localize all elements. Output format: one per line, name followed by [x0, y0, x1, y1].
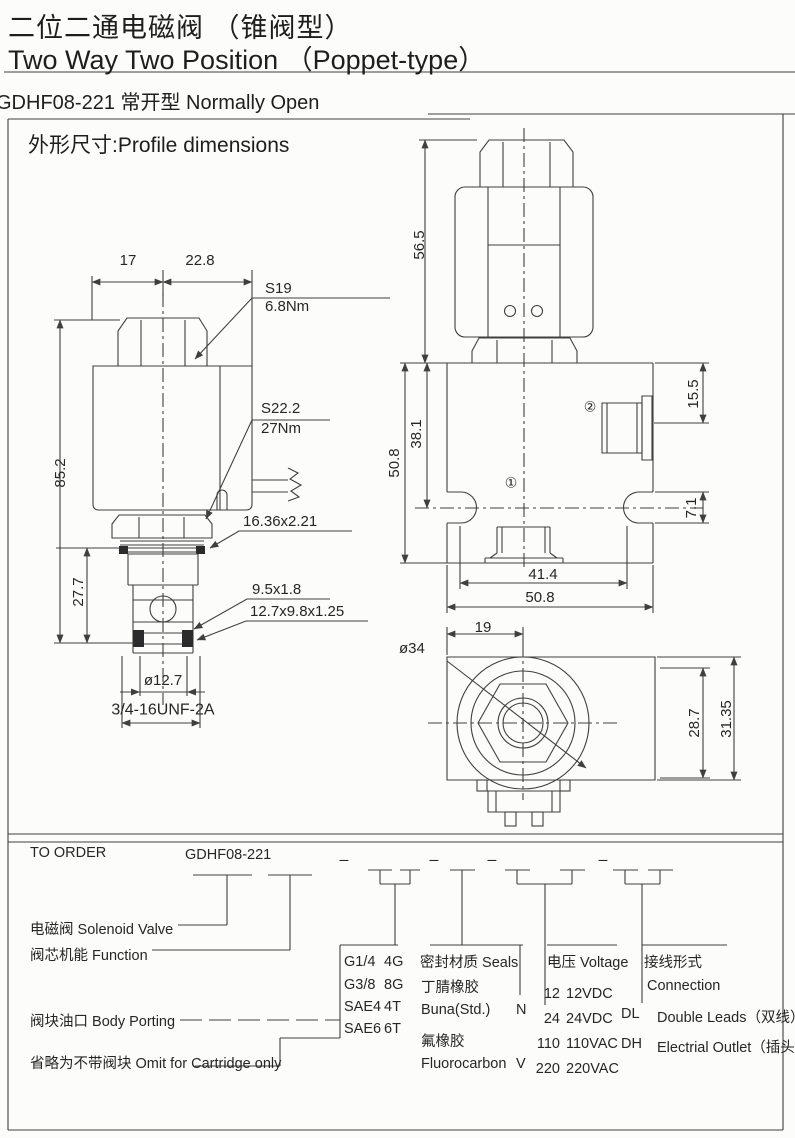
porting-code-1: 8G [384, 977, 403, 993]
seal-code-0: N [516, 1002, 526, 1018]
dim-body-width: 50.8 [525, 590, 554, 606]
seals-header: 密封材质 Seals [420, 951, 518, 972]
connection-desc-1: Electrial Outlet（插头） [657, 1036, 795, 1057]
order-dash-4: – [599, 853, 608, 870]
seal-zh-0: 丁腈橡胶 [421, 976, 479, 997]
dim-slot-width: 7.1 [684, 498, 700, 519]
connection-code-0: DL [621, 1006, 640, 1022]
seal-pack-label: 12.7x9.8x1.25 [250, 604, 344, 620]
dim-width-left: 17 [120, 253, 137, 269]
body-porting-label: 阀块油口 Body Porting [30, 1010, 175, 1031]
connection-code-1: DH [621, 1036, 642, 1052]
porting-size-0: G1/4 [344, 954, 375, 970]
dim-port-span: 41.4 [528, 567, 557, 583]
order-model-code: GDHF08-221 [185, 847, 271, 863]
solenoid-valve-label: 电磁阀 Solenoid Valve [30, 918, 173, 939]
porting-size-2: SAE4 [344, 999, 381, 1015]
dim-outer-height: 31.35 [719, 700, 735, 738]
dim-body-outer: 50.8 [387, 448, 403, 477]
thread-label: 3/4-16UNF-2A [111, 703, 214, 720]
voltage-code-3-text: 220 [532, 1061, 560, 1077]
dim-offset: 19 [475, 620, 492, 636]
voltage-header: 电压 Voltage [547, 951, 628, 972]
coil-diameter-label: ø34 [399, 641, 425, 657]
order-dash-2: – [430, 853, 439, 870]
locknut-size-label: S22.2 [261, 401, 300, 417]
porting-size-3: SAE6 [344, 1021, 381, 1037]
hex-size-label: S19 [265, 281, 292, 297]
dim-coil-height: 56.5 [412, 230, 428, 259]
porting-size-1: G3/8 [344, 977, 375, 993]
locknut-torque-label: 27Nm [261, 421, 301, 437]
oring-main-label: 16.36x2.21 [243, 514, 317, 530]
porting-code-0: 4G [384, 954, 403, 970]
dim-inner-height: 28.7 [687, 708, 703, 737]
side-view-drawing [400, 128, 709, 613]
dim-body-inner: 38.1 [409, 419, 425, 448]
seal-en-1: Fluorocarbon [421, 1056, 506, 1072]
voltage-code-1: 24 [532, 1011, 560, 1027]
oring-nose-label: 9.5x1.8 [252, 582, 301, 598]
porting-code-3: 6T [384, 1021, 401, 1037]
omit-cartridge-label: 省略为不带阀块 Omit for Cartridge only [30, 1052, 281, 1073]
voltage-code-0-text: 12 [532, 986, 560, 1002]
order-dash-3: – [488, 853, 497, 870]
voltage-desc-3: 220VAC [566, 1061, 619, 1077]
order-heading: TO ORDER [30, 845, 106, 861]
dim-width-right: 22.8 [185, 253, 214, 269]
datasheet-page: 二位二通电磁阀 （锥阀型） Two Way Two Position （Popp… [0, 0, 795, 1138]
seal-code-1: V [516, 1056, 526, 1072]
dim-total-height: 85.2 [53, 458, 69, 487]
seal-en-0: Buna(Std.) [421, 1002, 490, 1018]
function-label: 阀芯机能 Function [30, 944, 148, 965]
nose-diameter-label: ø12.7 [144, 673, 182, 689]
port-1-marker: ① [505, 476, 518, 491]
front-view-drawing [54, 270, 390, 728]
dim-cartridge-height: 27.7 [71, 577, 87, 606]
order-dash-1: – [340, 853, 349, 870]
voltage-desc-0: 12VDC [566, 986, 613, 1002]
voltage-code-3: 220 [532, 1061, 560, 1077]
section-heading: 外形尺寸:Profile dimensions [28, 129, 289, 159]
voltage-code-1-text: 24 [532, 1011, 560, 1027]
voltage-desc-2: 110VAC [566, 1036, 618, 1052]
dim-port2-offset: 15.5 [686, 379, 702, 408]
hex-torque-label: 6.8Nm [265, 299, 309, 315]
connection-header-en: Connection [647, 978, 720, 994]
port-2-marker: ② [584, 400, 597, 415]
voltage-code-2-text: 110 [532, 1036, 560, 1052]
connection-header-zh: 接线形式 [644, 951, 702, 972]
voltage-code-2: 110 [532, 1036, 560, 1052]
voltage-desc-1: 24VDC [566, 1011, 613, 1027]
seal-zh-1: 氟橡胶 [421, 1030, 465, 1051]
model-line: GDHF08-221 常开型 Normally Open [0, 86, 319, 115]
voltage-code-0: 12 [532, 986, 560, 1002]
page-title-en: Two Way Two Position （Poppet-type） [8, 38, 485, 77]
connection-desc-0: Double Leads（双线） [657, 1006, 795, 1027]
porting-code-2: 4T [384, 999, 401, 1015]
